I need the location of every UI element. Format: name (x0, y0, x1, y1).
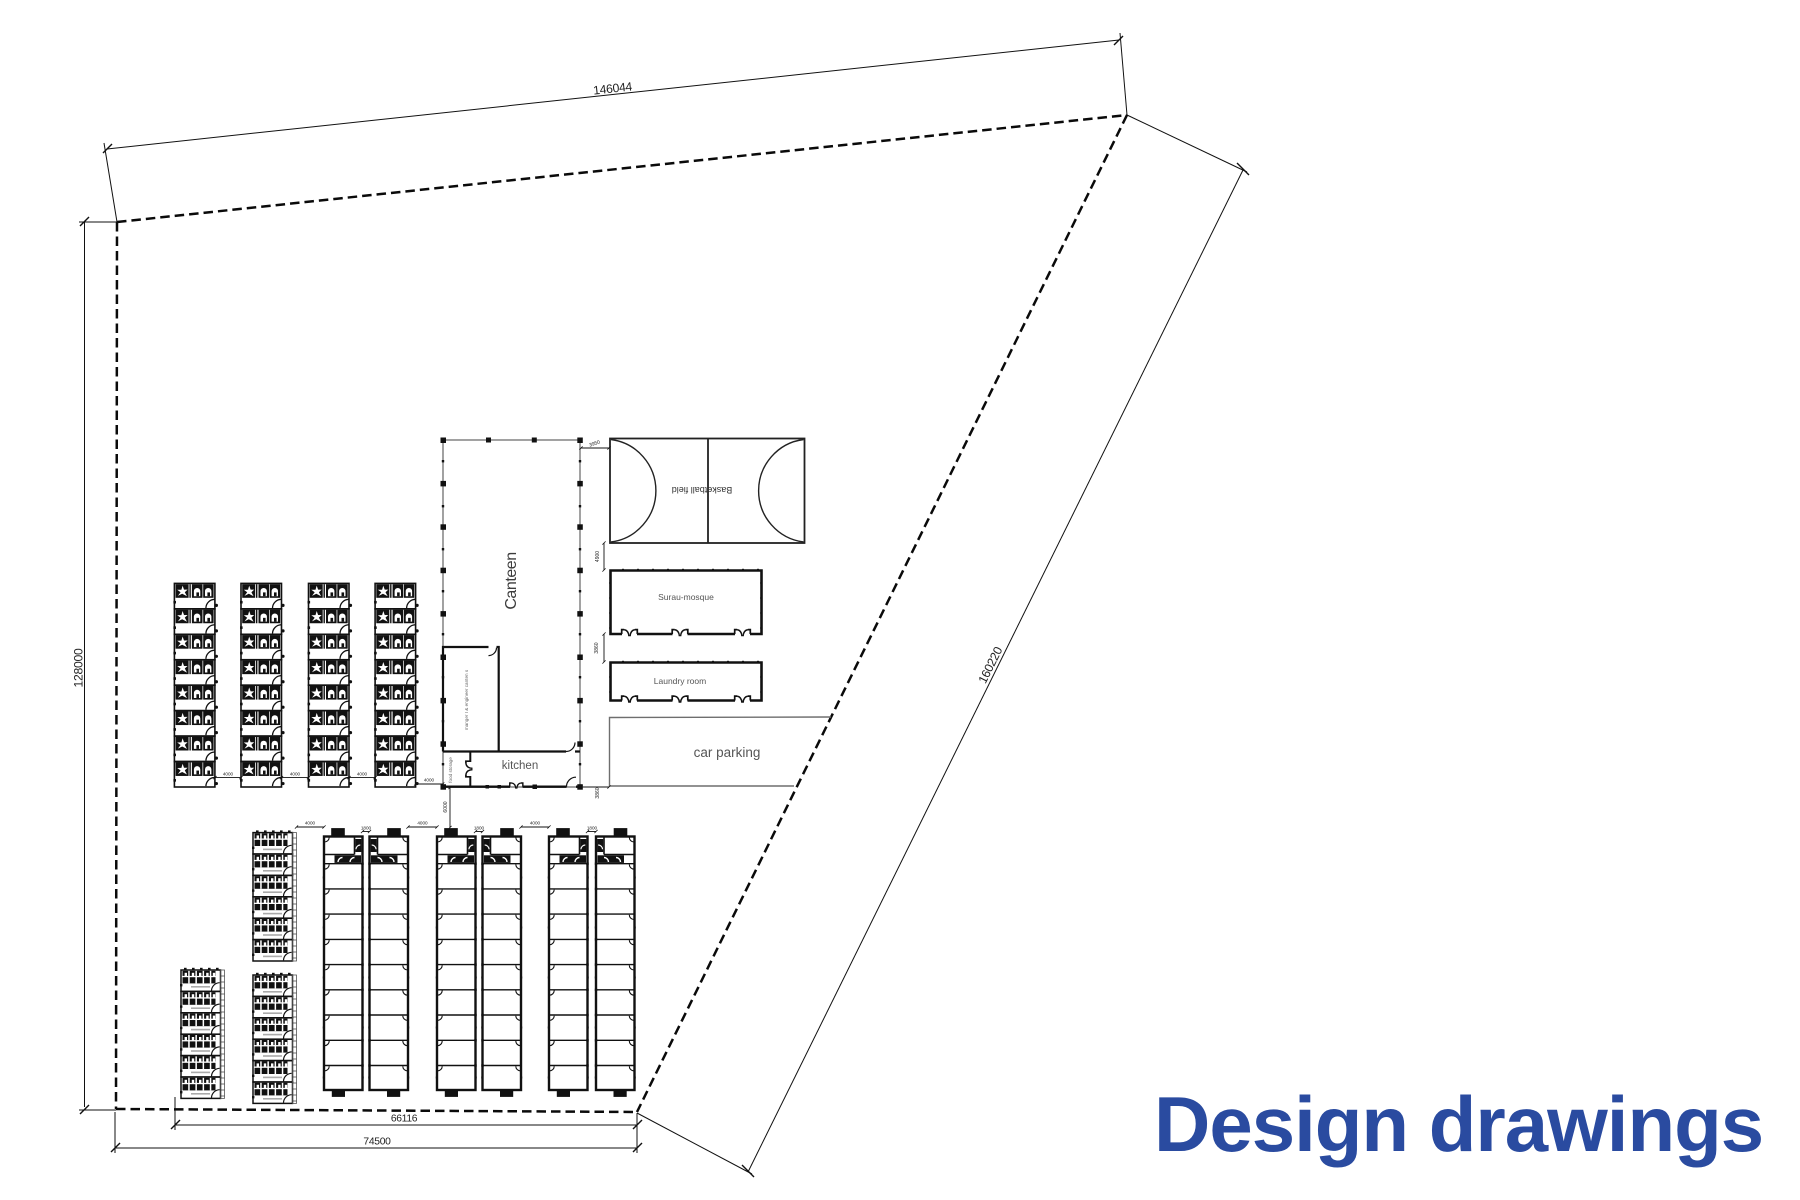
svg-text:Surau-mosque: Surau-mosque (658, 592, 714, 602)
svg-text:1800: 1800 (361, 826, 372, 831)
svg-text:food storage: food storage (448, 757, 453, 783)
svg-text:4900: 4900 (595, 551, 601, 562)
svg-text:4000: 4000 (424, 778, 435, 783)
svg-text:128000: 128000 (72, 648, 86, 687)
svg-text:Laundry room: Laundry room (654, 676, 706, 686)
svg-text:146044: 146044 (592, 79, 633, 97)
svg-text:car parking: car parking (694, 745, 761, 760)
svg-text:4000: 4000 (417, 821, 428, 826)
svg-text:4000: 4000 (305, 821, 316, 826)
svg-text:4000: 4000 (357, 772, 368, 777)
svg-text:Basketball field: Basketball field (672, 485, 733, 495)
svg-text:66116: 66116 (391, 1114, 418, 1125)
svg-text:Canteen: Canteen (503, 552, 520, 609)
svg-text:6000: 6000 (443, 801, 449, 812)
svg-text:4000: 4000 (530, 821, 541, 826)
svg-text:manger I & engineer canten s: manger I & engineer canten s (464, 669, 469, 730)
svg-text:4000: 4000 (290, 772, 301, 777)
svg-text:1800: 1800 (587, 826, 598, 831)
svg-text:1800: 1800 (474, 826, 485, 831)
svg-text:kitchen: kitchen (502, 760, 538, 772)
svg-text:4000: 4000 (223, 772, 234, 777)
svg-text:3950: 3950 (588, 439, 601, 448)
svg-text:74500: 74500 (363, 1137, 391, 1148)
svg-text:3860: 3860 (594, 642, 600, 653)
svg-text:160220: 160220 (975, 644, 1005, 685)
svg-text:3860: 3860 (595, 787, 601, 798)
